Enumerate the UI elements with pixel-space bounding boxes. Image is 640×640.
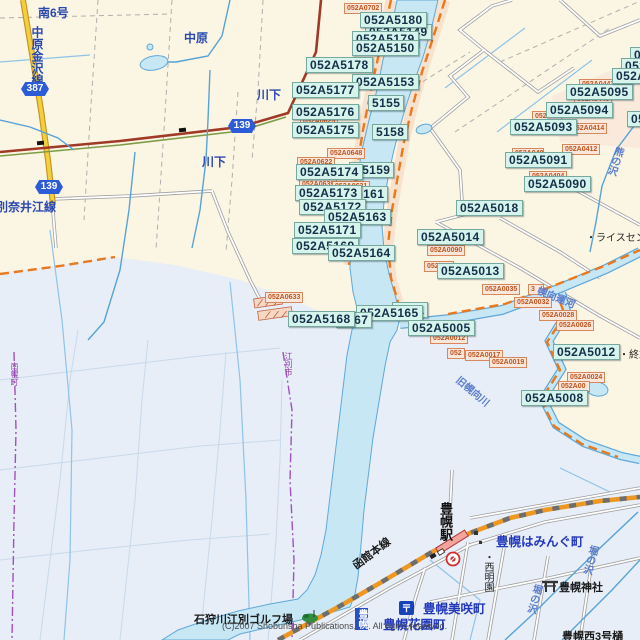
place-label: 中原 [184, 29, 208, 46]
map-sheet-code-label[interactable]: 052A5171 [294, 222, 361, 238]
route-shield: 387 [21, 82, 49, 96]
route-shield: 139 [228, 119, 256, 133]
place-label: 別奈井江線 [0, 198, 56, 215]
survey-code-label[interactable]: 052A0035 [482, 284, 520, 295]
map-sheet-code-label[interactable]: 052A509 [612, 68, 640, 84]
map-sheet-code-label[interactable]: 052A5018 [456, 200, 523, 216]
place-label: 南6号 [38, 4, 69, 21]
map-sheet-code-label[interactable]: 052A5091 [505, 152, 572, 168]
map-sheet-code-label[interactable]: 052A5093 [510, 119, 577, 135]
place-label: 中原金沢線 [29, 26, 46, 86]
map-sheet-code-label[interactable]: 052A5153 [352, 74, 419, 90]
map-sheet-code-label[interactable]: 052A5174 [296, 164, 363, 180]
map-sheet-code-label[interactable]: 052A5175 [292, 122, 359, 138]
map-sheet-code-label[interactable]: 052A5014 [417, 229, 484, 245]
map-sheet-code-label[interactable]: 052A5005 [408, 320, 475, 336]
place-label: 南幌町 [9, 362, 20, 386]
place-label: 熊の沢 [603, 144, 627, 177]
map-sheet-code-label[interactable]: 052A5180 [360, 12, 427, 28]
map-sheet-code-label[interactable]: 052A5164 [328, 245, 395, 261]
map-sheet-code-label[interactable]: 052A5168 [288, 311, 355, 327]
place-label: 豊幌西3号樋 [562, 628, 623, 640]
place-label: 豊幌 [355, 608, 368, 630]
place-label: 豊幌はみんぐ町 [496, 531, 584, 550]
label-layer: 052A0702052A0625052A0648052A0622052A0639… [0, 0, 640, 640]
map-sheet-code-label[interactable]: 5155 [368, 95, 404, 111]
map-canvas[interactable]: 〒 052A0702052A0625052A0648052A0622052A06… [0, 0, 640, 640]
map-sheet-code-label[interactable]: 052A5095 [566, 84, 633, 100]
place-label: 旧幌向川 [453, 372, 493, 409]
survey-code-label[interactable]: 052A0090 [427, 245, 465, 256]
place-label: ・ライスセンタ [586, 229, 640, 244]
survey-code-label[interactable]: 052 [447, 348, 465, 359]
place-label: 堀の沢 [522, 582, 544, 615]
map-sheet-code-label[interactable]: 052A50 [627, 111, 640, 127]
map-sheet-code-label[interactable]: 052A5176 [292, 104, 359, 120]
map-sheet-code-label[interactable]: 052A5177 [292, 82, 359, 98]
map-sheet-code-label[interactable]: 052A5008 [521, 390, 588, 406]
survey-code-label[interactable]: 052A0019 [489, 357, 527, 368]
place-label: (C)2007 Shobunsha Publications,Inc. All … [222, 621, 447, 631]
map-sheet-code-label[interactable]: 052A5013 [437, 263, 504, 279]
map-sheet-code-label[interactable]: 5158 [372, 124, 408, 140]
place-label: 豊幌駅 [436, 502, 455, 541]
place-label: 豊幌神社 [559, 579, 603, 595]
place-label: 川下 [257, 86, 281, 103]
place-label: ・終末 [619, 346, 640, 361]
route-shield: 139 [35, 180, 63, 194]
map-sheet-code-label[interactable]: 052A5178 [306, 57, 373, 73]
map-sheet-code-label[interactable]: 052A5012 [553, 344, 620, 360]
survey-code-label[interactable]: 052A0026 [556, 320, 594, 331]
place-label: 江別市 [283, 352, 294, 376]
place-label: 函館本線 [349, 534, 394, 573]
place-label: ・西明園 [480, 552, 495, 592]
map-sheet-code-label[interactable]: 052A5150 [352, 40, 419, 56]
map-sheet-code-label[interactable]: 052A5094 [546, 102, 613, 118]
map-sheet-code-label[interactable]: 052A5090 [524, 176, 591, 192]
place-label: 川下 [202, 153, 226, 170]
survey-code-label[interactable]: 052A0633 [265, 292, 303, 303]
